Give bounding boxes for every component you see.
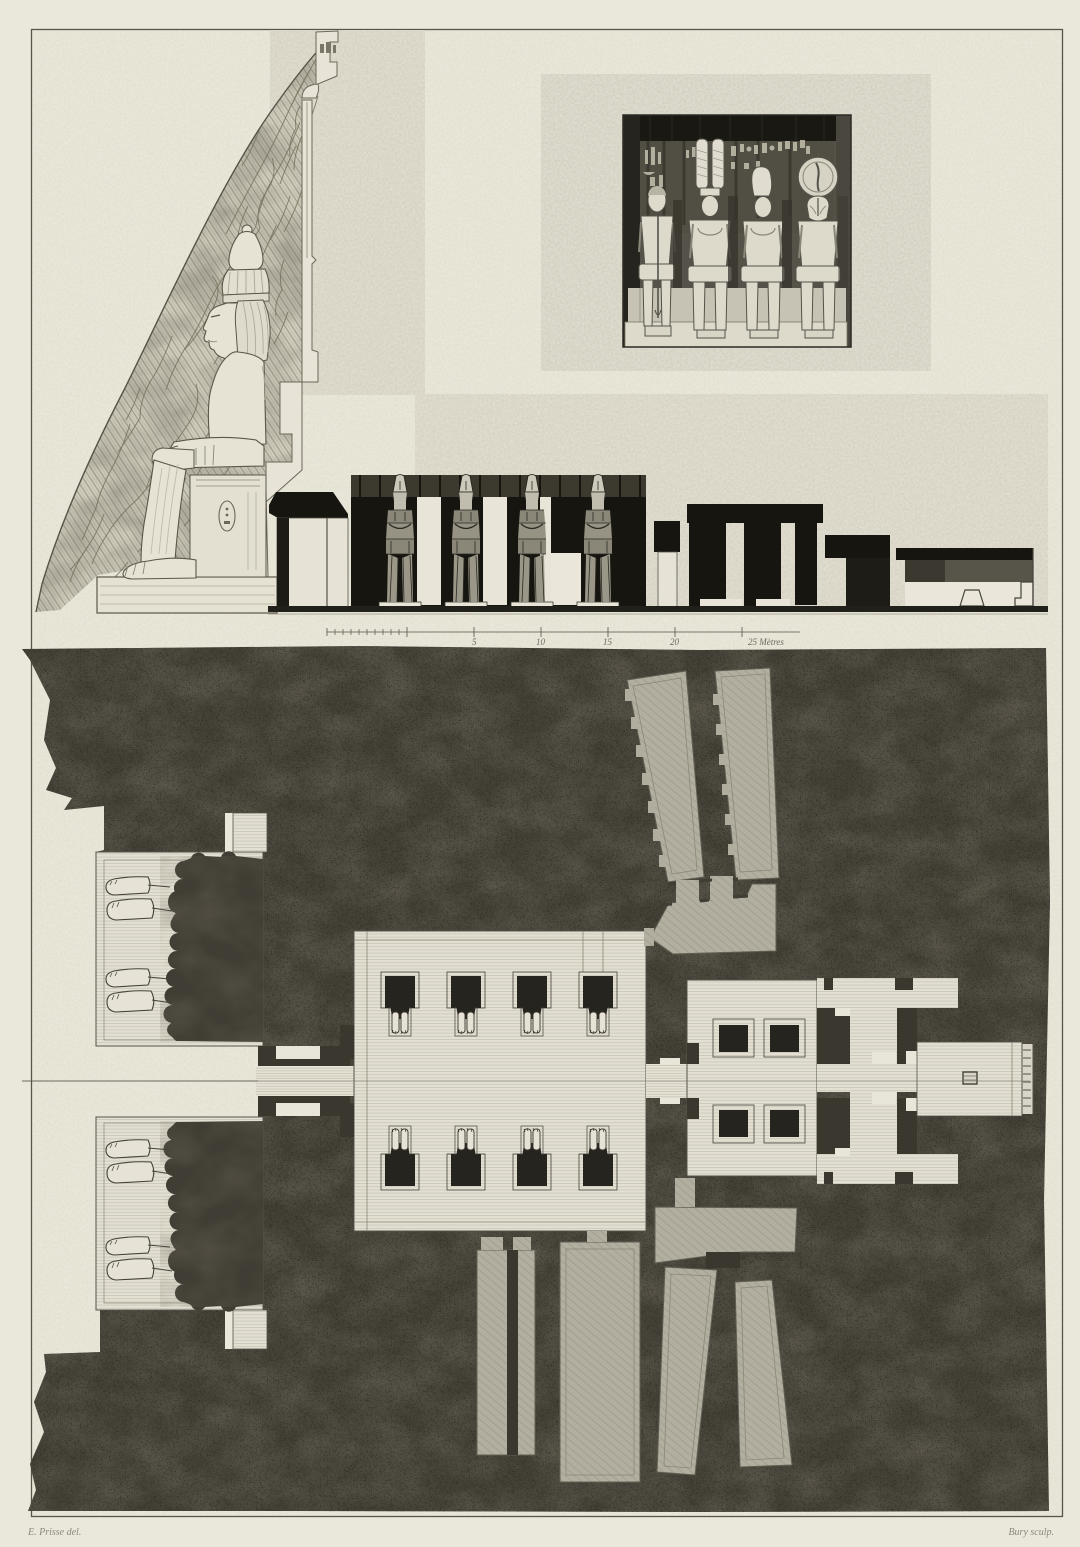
svg-text:15: 15 (603, 637, 613, 647)
svg-text:5: 5 (472, 637, 477, 647)
svg-text:E. Prisse del.: E. Prisse del. (27, 1527, 81, 1538)
svg-text:10: 10 (536, 637, 546, 647)
svg-text:20: 20 (670, 637, 680, 647)
svg-text:Bury sculp.: Bury sculp. (1008, 1527, 1054, 1538)
svg-text:25 Mètres: 25 Mètres (748, 637, 784, 647)
